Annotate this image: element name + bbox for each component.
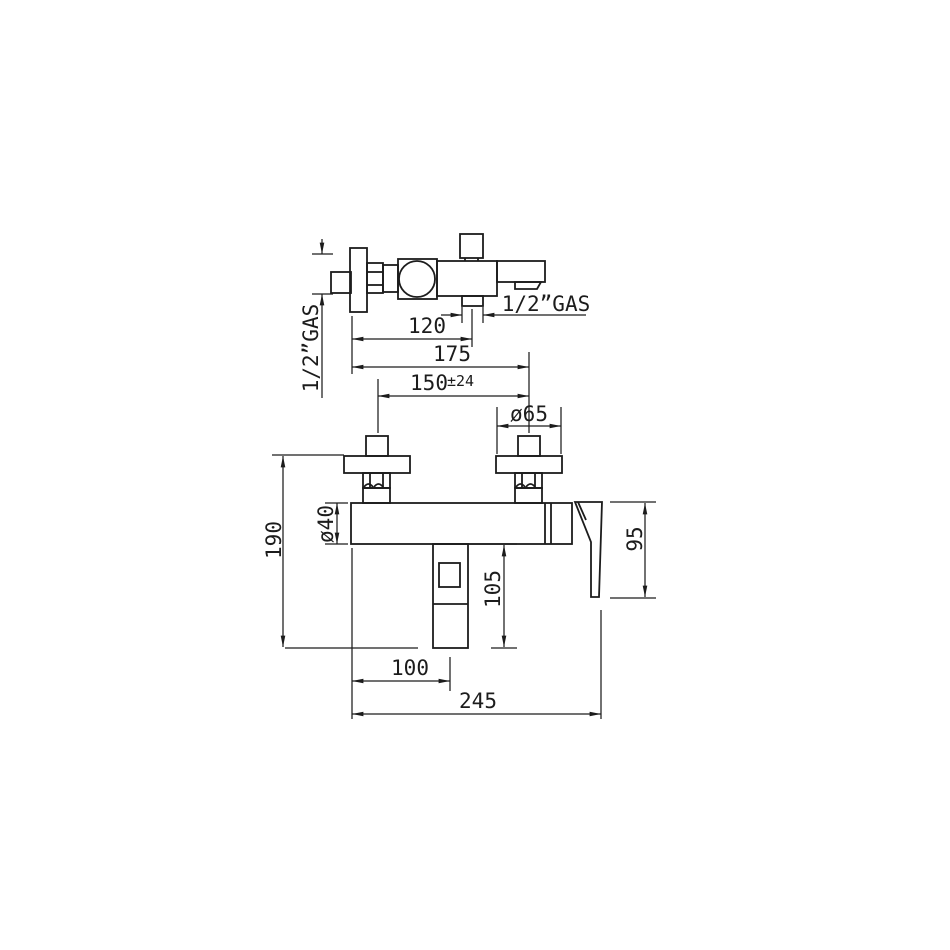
left-union-flange bbox=[344, 456, 410, 473]
left-union-hex-nut bbox=[363, 473, 390, 488]
right-union-shank bbox=[515, 488, 542, 503]
side-view-spout-nozzle bbox=[515, 282, 541, 289]
dim-40-label: ø40 bbox=[314, 505, 338, 543]
side-view-body bbox=[437, 261, 497, 296]
handle-lever bbox=[575, 502, 602, 597]
dim-65-label: ø65 bbox=[510, 402, 548, 426]
dim-245-label: 245 bbox=[459, 689, 497, 713]
side-view-cartridge-housing bbox=[398, 259, 437, 299]
right-union-flange bbox=[496, 456, 562, 473]
front-view bbox=[344, 436, 602, 648]
outlet-thread-label: 1/2”GAS bbox=[502, 292, 591, 316]
dim-150-tolerance-label: ±24 bbox=[447, 372, 474, 390]
side-view-connector bbox=[383, 265, 398, 292]
side-view-cartridge-circle bbox=[399, 261, 435, 297]
dim-95-label: 95 bbox=[623, 526, 647, 551]
front-view-body bbox=[351, 503, 572, 544]
dim-105-label: 105 bbox=[481, 570, 505, 608]
dim-175-label: 175 bbox=[433, 342, 471, 366]
inlet-thread-label: 1/2”GAS bbox=[299, 304, 323, 393]
diverter-button bbox=[439, 563, 460, 587]
right-union-hex-nut bbox=[515, 473, 542, 488]
spout bbox=[433, 544, 468, 648]
side-view-wall-flange bbox=[350, 248, 367, 312]
front-view-right-union bbox=[496, 436, 562, 503]
right-union-pipe bbox=[518, 436, 540, 456]
dim-150-label: 150 bbox=[410, 371, 448, 395]
left-union-pipe bbox=[366, 436, 388, 456]
left-union-hex-arcs bbox=[364, 484, 383, 487]
side-view-diverter-knob bbox=[460, 234, 483, 261]
faucet-dimension-drawing: 1/2”GAS 1/2”GAS 120 175 150 ±24 ø65 bbox=[0, 0, 950, 950]
front-view-left-union bbox=[344, 436, 410, 503]
left-union-shank bbox=[363, 488, 390, 503]
side-view-shower-outlet-tab bbox=[462, 296, 483, 306]
side-view-inlet-pipe bbox=[331, 272, 351, 293]
dim-120-label: 120 bbox=[408, 314, 446, 338]
right-union-hex-arcs bbox=[516, 484, 535, 487]
dim-100-label: 100 bbox=[391, 656, 429, 680]
dim-190-label: 190 bbox=[262, 521, 286, 559]
spout-body bbox=[433, 544, 468, 648]
technical-drawing-canvas: 1/2”GAS 1/2”GAS 120 175 150 ±24 ø65 bbox=[0, 0, 950, 950]
side-view-hex-nut bbox=[367, 263, 383, 293]
side-view-spout-arm bbox=[497, 261, 545, 282]
